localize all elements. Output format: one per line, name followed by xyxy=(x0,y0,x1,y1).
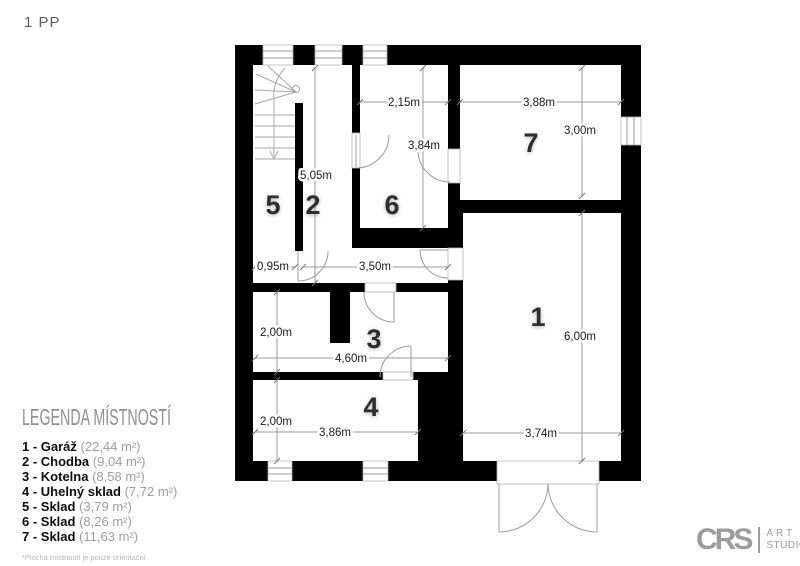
legend-room-area: (3,79 m²) xyxy=(75,499,131,514)
wall-room3-stub xyxy=(330,288,350,343)
window-glass xyxy=(268,461,292,481)
dim-corridor-width: 3,50m xyxy=(300,261,451,273)
window-bottom-2 xyxy=(363,461,388,481)
window-bottom-1 xyxy=(268,461,292,481)
wall-room4-right xyxy=(418,372,463,462)
dim-label: 0,95m xyxy=(257,261,289,273)
window-glass xyxy=(263,45,293,65)
dim-room6-width: 2,15m xyxy=(357,97,451,109)
dim-label: 3,74m xyxy=(525,428,557,440)
dim-label: 5,05m xyxy=(300,170,332,182)
door-opening xyxy=(365,283,396,292)
window-top-3 xyxy=(363,45,387,65)
legend-room-label: 5 - Sklad xyxy=(22,499,75,514)
dim-room6-height: 3,84m xyxy=(408,65,440,231)
window-glass xyxy=(315,45,342,65)
wall-room3-4-right xyxy=(413,372,418,380)
dim-room4-height: 2,00m xyxy=(260,377,292,464)
dim-label: 4,60m xyxy=(335,353,367,365)
dim-label: 3,00m xyxy=(564,125,596,137)
legend-room-area: (8,58 m²) xyxy=(88,469,144,484)
studio-logo: CRS ART STUDIO xyxy=(696,526,800,554)
legend-item-4: 4 - Uhelný sklad (7,72 m²) xyxy=(22,484,242,499)
logo-word-art: ART xyxy=(766,528,800,540)
room-number-2: 2 xyxy=(305,190,320,220)
logo-initials: CRS xyxy=(696,526,750,554)
dim-room7-height: 3,00m xyxy=(564,65,596,199)
wall-room3-4-left xyxy=(253,372,383,380)
dim-room3-height: 2,00m xyxy=(260,289,292,375)
door-room2-room6 xyxy=(352,133,389,168)
door-swing-arc xyxy=(420,250,448,278)
staircase xyxy=(255,66,300,159)
dim-label: 3,50m xyxy=(359,261,391,273)
door-swing-arc xyxy=(298,251,328,281)
door-opening xyxy=(448,149,460,183)
wall-room7-bottom xyxy=(448,200,621,213)
room-number-7: 7 xyxy=(523,128,538,158)
room-number-4: 4 xyxy=(363,392,378,422)
door-room6-room7 xyxy=(418,149,460,183)
door-stairs xyxy=(298,251,328,281)
door-swing-arc xyxy=(356,135,389,168)
dim-label: 3,88m xyxy=(523,97,555,109)
page: 1 PP xyxy=(0,0,800,566)
legend-room-area: (22,44 m²) xyxy=(77,439,141,454)
dim-room1-height: 6,00m xyxy=(564,210,596,464)
wall-corridor-bottom-right xyxy=(396,283,448,292)
room-number-1: 1 xyxy=(530,302,545,332)
legend-room-label: 4 - Uhelný sklad xyxy=(22,484,121,499)
legend-item-2: 2 - Chodba (9,04 m²) xyxy=(22,454,242,469)
legend-room-area: (11,63 m²) xyxy=(75,529,138,544)
room-number-3: 3 xyxy=(366,324,381,354)
legend-room-area: (7,72 m²) xyxy=(121,484,177,499)
legend-room-label: 3 - Kotelna xyxy=(22,469,88,484)
wall-room2-6-lower xyxy=(352,168,360,230)
wall-room2-6-upper xyxy=(352,65,360,135)
garage-double-door xyxy=(497,461,599,532)
window-right xyxy=(621,117,641,145)
stair-walkline xyxy=(274,68,285,156)
logo-word-studio: STUDIO xyxy=(766,540,800,552)
legend-room-label: 2 - Chodba xyxy=(22,454,89,469)
stair-winder xyxy=(255,92,296,104)
logo-wordmark: ART STUDIO xyxy=(766,528,800,552)
window-top-2 xyxy=(315,45,342,65)
legend-room-area: (9,04 m²) xyxy=(89,454,145,469)
dim-label: 2,00m xyxy=(260,327,292,339)
window-glass xyxy=(363,461,388,481)
dim-room2-height: 5,05m xyxy=(300,65,332,286)
legend-footnote: *Plocha místností je pouze orientační xyxy=(22,553,242,562)
legend-room-area: (8,26 m²) xyxy=(75,514,131,529)
wall-room6-7-upper xyxy=(448,65,460,149)
wall-room1-top-left xyxy=(448,213,463,248)
garage-door-arc-left xyxy=(499,484,548,532)
legend-room-label: 1 - Garáž xyxy=(22,439,77,454)
stair-winder xyxy=(268,66,296,92)
legend-room-label: 6 - Sklad xyxy=(22,514,75,529)
legend-item-7: 7 - Sklad (11,63 m²) xyxy=(22,529,242,544)
legend-room-label: 7 - Sklad xyxy=(22,529,75,544)
legend-item-5: 5 - Sklad (3,79 m²) xyxy=(22,499,242,514)
legend-title: LEGENDA MÍSTNOSTÍ xyxy=(22,404,158,431)
legend-item-3: 3 - Kotelna (8,58 m²) xyxy=(22,469,242,484)
dim-passage-width: 0,95m xyxy=(252,261,298,273)
wall-room6-bottom xyxy=(352,228,448,248)
dim-room7-width: 3,88m xyxy=(457,97,624,109)
window-top-1 xyxy=(263,45,293,65)
garage-door-arc-right xyxy=(548,484,597,532)
room-number-5: 5 xyxy=(265,190,280,220)
dim-label: 2,00m xyxy=(260,416,292,428)
door-corridor-room3 xyxy=(364,283,396,322)
door-opening xyxy=(383,372,413,380)
wall-room6-7-lower xyxy=(448,181,460,200)
legend-item-1: 1 - Garáž (22,44 m²) xyxy=(22,439,242,454)
door-swing-arc xyxy=(364,292,394,322)
door-opening xyxy=(448,248,463,280)
legend: LEGENDA MÍSTNOSTÍ 1 - Garáž (22,44 m²) 2… xyxy=(22,404,242,562)
window-glass xyxy=(621,117,641,145)
room-number-6: 6 xyxy=(384,190,399,220)
window-glass xyxy=(363,45,387,65)
dim-label: 3,86m xyxy=(319,427,351,439)
stair-winder xyxy=(255,90,296,92)
legend-item-6: 6 - Sklad (8,26 m²) xyxy=(22,514,242,529)
dim-room1-width: 3,74m xyxy=(460,428,624,440)
dim-label: 2,15m xyxy=(388,97,420,109)
garage-door-frame xyxy=(497,461,599,484)
wall-top xyxy=(235,45,641,65)
dim-label: 3,84m xyxy=(408,140,440,152)
wall-right xyxy=(621,45,641,481)
door-corridor-room1 xyxy=(420,248,463,280)
logo-divider xyxy=(758,527,760,553)
door-room3-room4 xyxy=(380,346,413,380)
dim-room3-width: 4,60m xyxy=(252,353,451,365)
dim-label: 6,00m xyxy=(564,331,596,343)
